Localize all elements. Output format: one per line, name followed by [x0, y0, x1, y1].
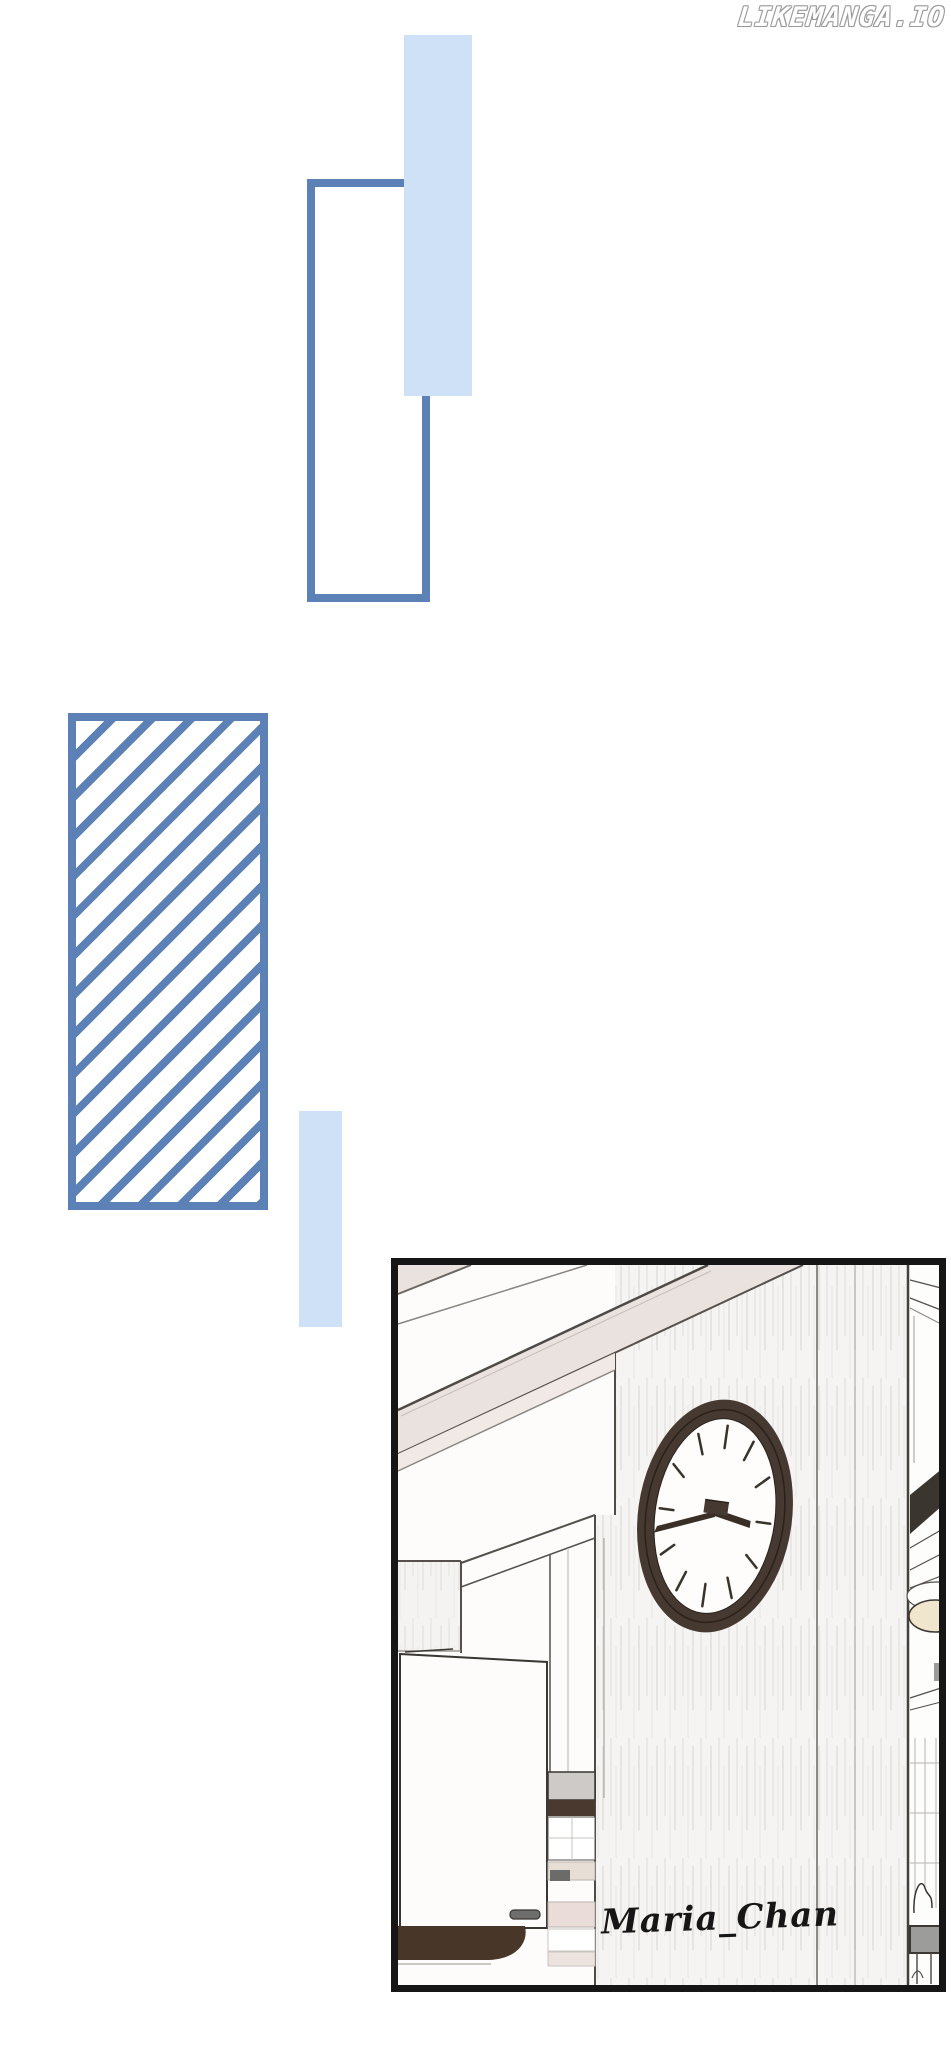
diagonal-hatched-rectangle: [68, 713, 268, 1210]
wood-pillar: [595, 1262, 908, 1988]
panel-artwork: [391, 1258, 946, 1992]
light-blue-bar-top: [404, 35, 472, 396]
site-watermark: LIKEMANGA.IO: [428, 2, 946, 33]
table-top: [910, 1926, 943, 1953]
light-blue-bar-middle: [299, 1111, 342, 1327]
comic-panel: Maria_Chan: [391, 1258, 946, 1992]
manga-page: LIKEMANGA.IO: [0, 0, 951, 2048]
